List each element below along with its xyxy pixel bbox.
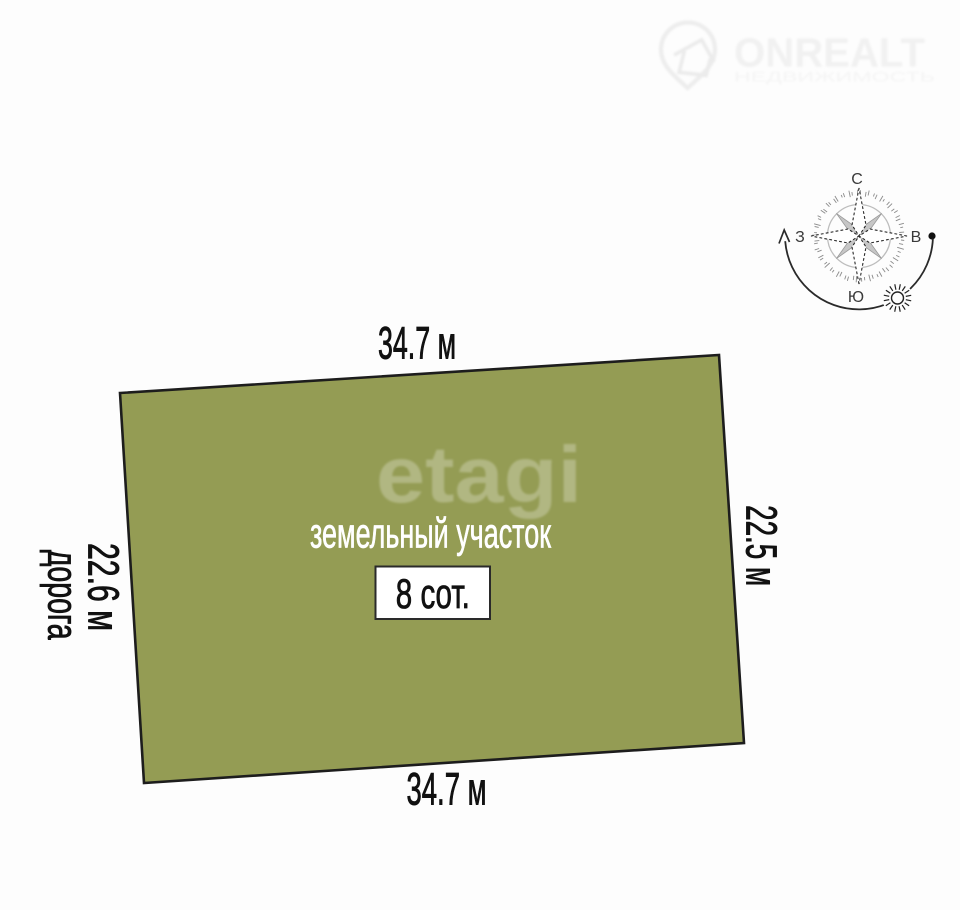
svg-text:дорога: дорога	[40, 550, 87, 640]
svg-text:земельный участок: земельный участок	[310, 510, 551, 557]
svg-text:8 сот.: 8 сот.	[396, 570, 470, 617]
svg-text:Ю: Ю	[848, 289, 864, 306]
svg-text:34.7 м: 34.7 м	[407, 764, 487, 815]
svg-text:22.5 м: 22.5 м	[737, 505, 786, 586]
svg-text:З: З	[795, 229, 805, 246]
svg-text:etagi: etagi	[376, 430, 582, 519]
svg-text:34.7 м: 34.7 м	[378, 318, 456, 369]
svg-text:С: С	[851, 171, 863, 188]
svg-text:В: В	[911, 229, 922, 246]
svg-text:НЕДВИЖИМОСТЬ: НЕДВИЖИМОСТЬ	[734, 69, 935, 85]
